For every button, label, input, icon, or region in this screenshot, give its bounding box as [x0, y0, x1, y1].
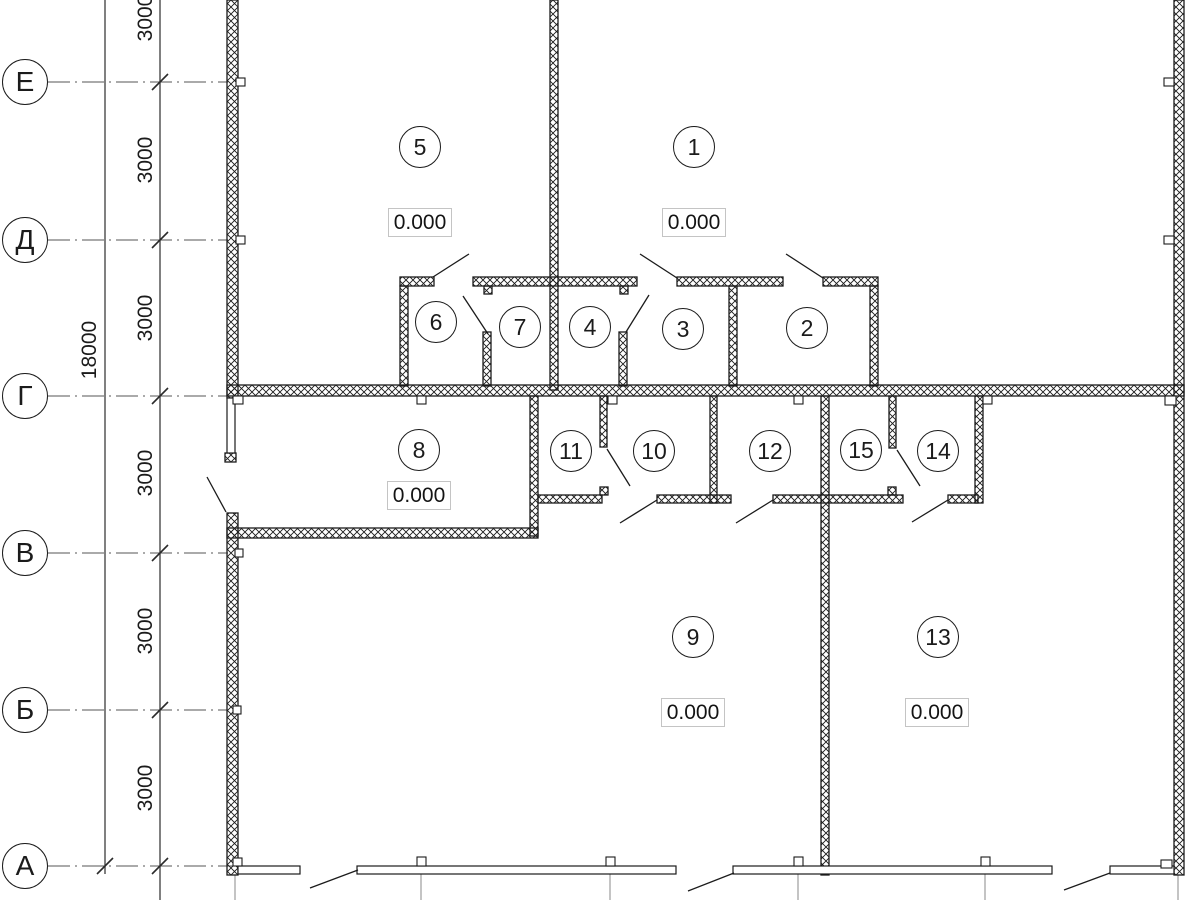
wall-left-thin-section [227, 398, 235, 453]
doors-layer [207, 254, 1110, 891]
room-tag-7: 7 [499, 306, 541, 348]
room-tag-3: 3 [662, 308, 704, 350]
axis-lines-layer [48, 82, 1184, 866]
dim-bay-1: 3000 [132, 0, 160, 68]
door-room-2 [786, 254, 823, 278]
wall-room-8-bottom [227, 528, 538, 538]
wall-room-11-bottom [538, 495, 602, 503]
axis-bubble-d: Д [2, 217, 48, 263]
dim-bay-5: 3000 [132, 581, 160, 681]
room-tag-10: 10 [633, 430, 675, 472]
wall-room-12-bottom [773, 495, 903, 503]
wall-left-door-jamb [225, 453, 236, 462]
window-bottom-2 [357, 866, 676, 874]
jamb-room-15 [888, 487, 896, 495]
floor-plan-canvas [0, 0, 1200, 900]
door-room-9-exterior-left [310, 870, 358, 888]
room-tag-1: 1 [673, 126, 715, 168]
axis-bubble-a: А [2, 843, 48, 889]
elevation-room-9: 0.000 [661, 698, 725, 727]
wall-band-top-seg3 [677, 277, 783, 286]
room-tag-5: 5 [399, 126, 441, 168]
axis-bubble-e: Е [2, 59, 48, 105]
room-tag-15: 15 [840, 429, 882, 471]
door-room-6 [433, 254, 469, 277]
door-rooms-4-3 [626, 295, 649, 332]
dim-bay-4: 3000 [132, 423, 160, 523]
axis-bubble-b: Б [2, 687, 48, 733]
window-bottom-1 [238, 866, 300, 874]
dim-total: 18000 [76, 300, 104, 400]
window-bottom-3 [733, 866, 1052, 874]
room-tag-11: 11 [550, 430, 592, 472]
wall-rooms-5-1-divider [550, 0, 558, 390]
elevation-room-1: 0.000 [662, 208, 726, 237]
door-room-13-exterior [1064, 873, 1110, 890]
wall-exterior-left-upper [227, 0, 238, 398]
wall-band-top-seg2 [473, 277, 637, 286]
wall-exterior-left-lower [227, 513, 238, 875]
wall-band-left [400, 286, 408, 386]
wall-room-10-bottom [657, 495, 731, 503]
axis-bubble-v: В [2, 530, 48, 576]
elevation-room-8: 0.000 [387, 481, 451, 510]
room-tag-6: 6 [415, 301, 457, 343]
wall-exterior-right [1174, 0, 1184, 875]
room-tag-9: 9 [672, 616, 714, 658]
jamb-room-11 [600, 487, 608, 495]
jamb-4-3 [620, 286, 628, 294]
room-tag-2: 2 [786, 307, 828, 349]
wall-rooms-9-13 [821, 396, 829, 875]
elevation-room-13: 0.000 [905, 698, 969, 727]
room-tag-4: 4 [569, 306, 611, 348]
wall-band-top-seg4 [823, 277, 878, 286]
dim-bay-6: 3000 [132, 738, 160, 838]
grid-stub-lines [235, 874, 1178, 900]
dim-bay-3: 3000 [132, 268, 160, 368]
jamb-6-7 [484, 286, 492, 294]
room-tag-14: 14 [917, 430, 959, 472]
room-tag-13: 13 [917, 616, 959, 658]
wall-band-top-seg1 [400, 277, 434, 286]
door-room-10 [620, 500, 657, 523]
room-tag-8: 8 [398, 429, 440, 471]
door-room-12 [736, 500, 773, 523]
wall-rooms-11-10 [600, 396, 607, 447]
floor-plan: Е Д Г В Б А 3000 3000 3000 3000 3000 300… [0, 0, 1200, 900]
wall-rooms-10-12 [710, 396, 717, 503]
dim-bay-2: 3000 [132, 110, 160, 210]
axis-bubble-g: Г [2, 373, 48, 419]
wall-rooms-3-2 [729, 286, 737, 386]
windows-layer [238, 866, 1174, 874]
wall-rooms-6-7 [483, 332, 491, 386]
door-room-3 [640, 254, 677, 278]
wall-axis-g-main [227, 385, 1184, 396]
door-rooms-6-7 [463, 296, 488, 334]
door-rooms-11-10 [607, 449, 630, 486]
wall-rooms-15-14 [889, 396, 896, 448]
elevation-room-5: 0.000 [388, 208, 452, 237]
wall-rooms-4-3 [619, 332, 627, 386]
door-room-14 [912, 500, 948, 522]
wall-room-14-bottom [948, 495, 978, 503]
door-room-8-exterior [207, 477, 226, 512]
room-tag-12: 12 [749, 430, 791, 472]
wall-room-14-right [975, 396, 983, 503]
column-markers-layer [233, 78, 1176, 868]
wall-room-8-right [530, 396, 538, 536]
door-room-9-exterior-right [688, 873, 734, 891]
wall-room-2-right [870, 286, 878, 386]
